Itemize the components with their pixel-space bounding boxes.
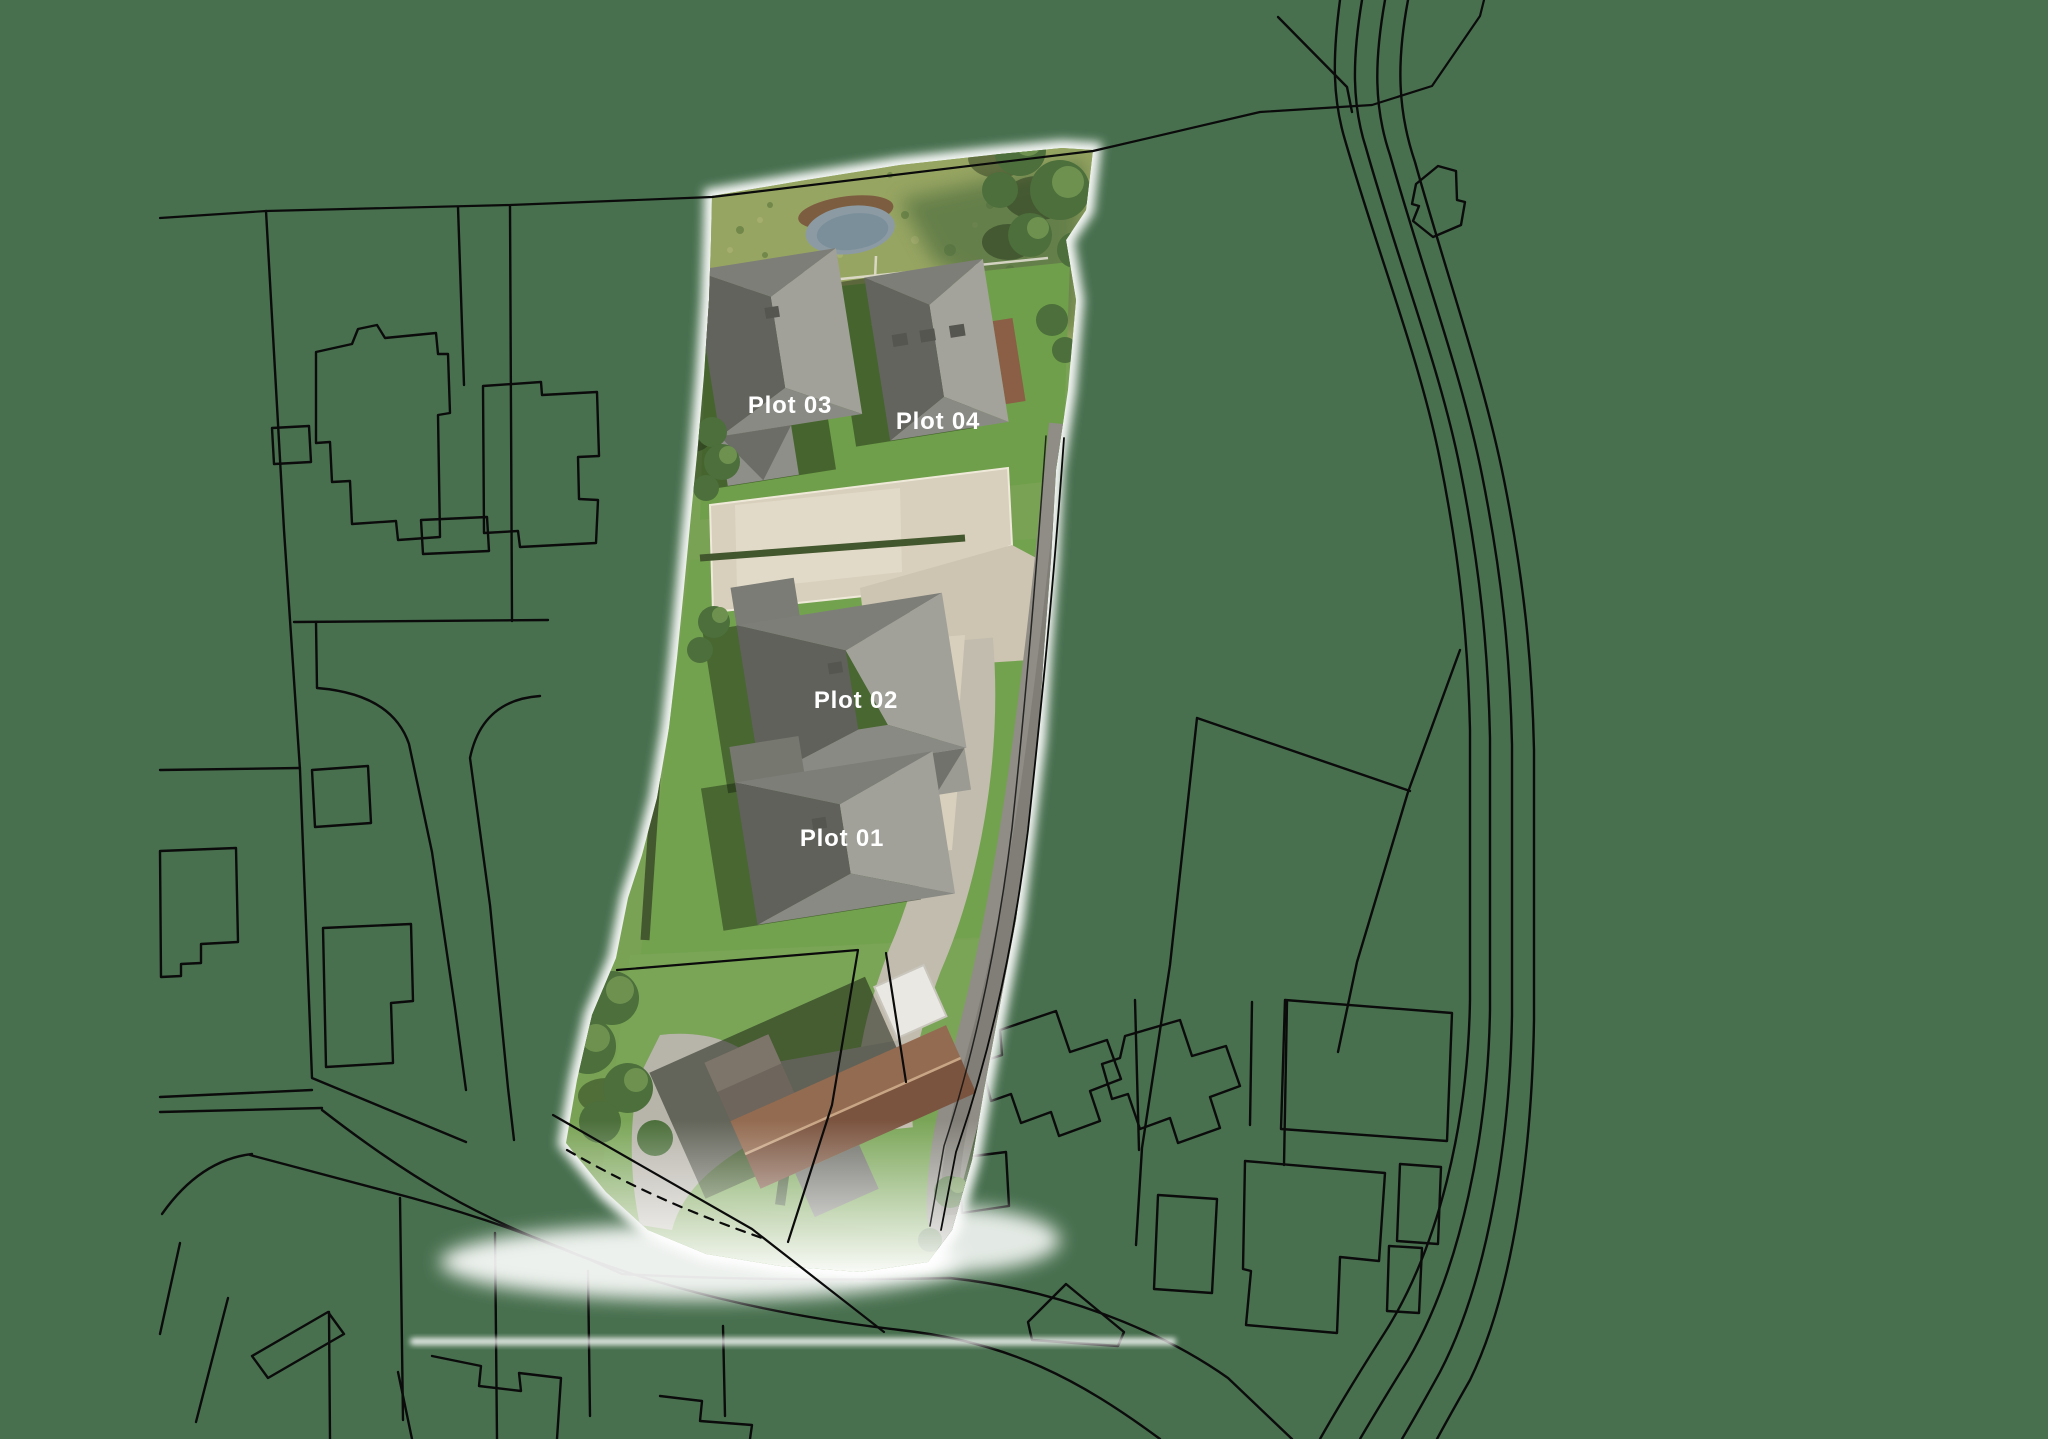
plot-label-04[interactable]: Plot 04: [896, 408, 980, 435]
plot-label-03[interactable]: Plot 03: [748, 392, 832, 419]
plot-label-02[interactable]: Plot 02: [814, 687, 898, 714]
site-plan: Plot 03 Plot 04 Plot 02 Plot 01: [0, 0, 2048, 1439]
faded-road-streak: [410, 1338, 1176, 1345]
parking-court-inner: [735, 488, 902, 590]
site-plan-canvas: Plot 03 Plot 04 Plot 02 Plot 01: [0, 0, 2048, 1439]
plot-label-01[interactable]: Plot 01: [800, 825, 884, 852]
